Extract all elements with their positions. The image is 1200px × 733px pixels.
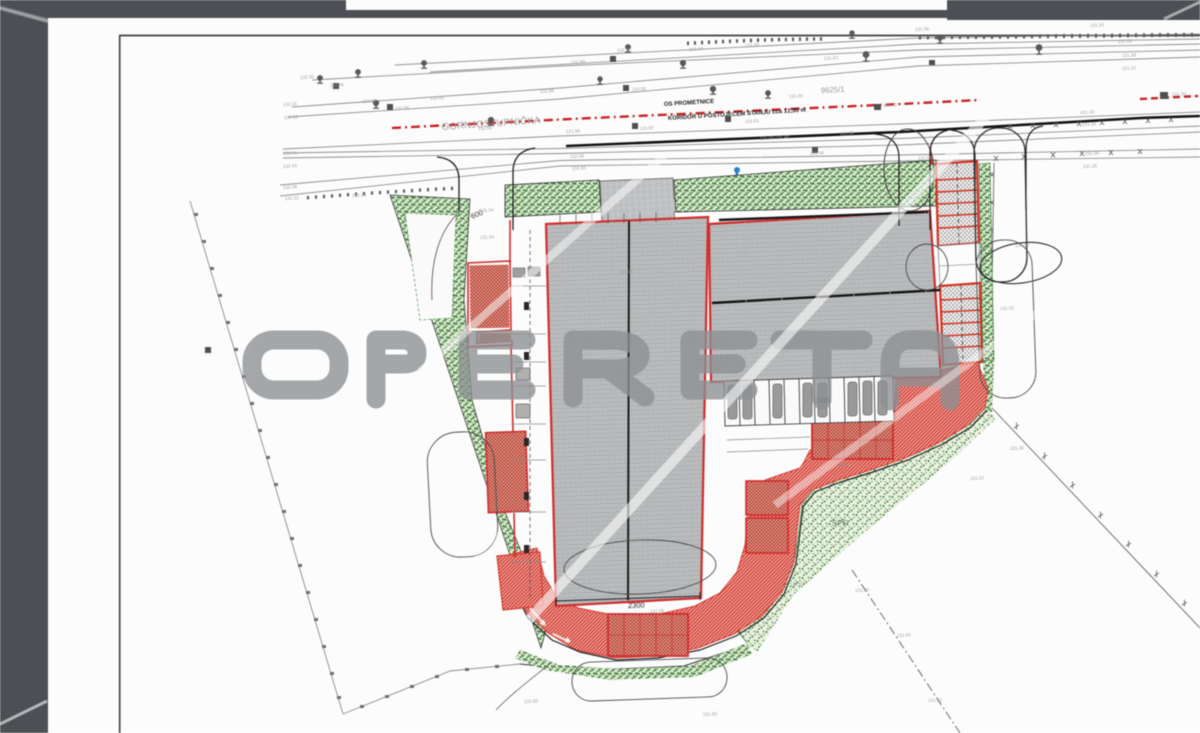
svg-text:131.83: 131.83 xyxy=(824,55,839,61)
svg-text:131.85: 131.85 xyxy=(703,711,718,717)
svg-text:131.82: 131.82 xyxy=(883,102,898,108)
svg-text:131.30: 131.30 xyxy=(1010,445,1025,451)
svg-text:132.08: 132.08 xyxy=(395,105,410,111)
svg-text:2300: 2300 xyxy=(628,600,645,610)
svg-text:131.32: 131.32 xyxy=(1000,305,1015,311)
svg-text:132.09: 132.09 xyxy=(632,86,647,92)
svg-text:131.62: 131.62 xyxy=(928,697,943,703)
svg-text:131.97: 131.97 xyxy=(640,125,655,131)
svg-text:131.99: 131.99 xyxy=(571,59,586,65)
svg-text:131.85: 131.85 xyxy=(789,93,804,99)
svg-text:132.43: 132.43 xyxy=(283,163,298,169)
svg-text:132.30: 132.30 xyxy=(300,74,315,80)
svg-text:131.38: 131.38 xyxy=(1122,52,1137,58)
svg-text:131.98: 131.98 xyxy=(540,88,555,94)
svg-text:131.84: 131.84 xyxy=(689,46,704,52)
svg-text:131.20: 131.20 xyxy=(1015,242,1030,248)
svg-text:131.80: 131.80 xyxy=(855,587,870,593)
svg-text:132.20: 132.20 xyxy=(617,47,632,53)
svg-text:131.38: 131.38 xyxy=(1085,150,1100,156)
svg-text:132.06: 132.06 xyxy=(478,125,493,131)
svg-text:132.36: 132.36 xyxy=(619,269,634,275)
svg-text:131.25: 131.25 xyxy=(1083,163,1098,169)
svg-text:132.02: 132.02 xyxy=(430,95,445,101)
svg-text:131.34: 131.34 xyxy=(480,234,495,240)
svg-text:132.23: 132.23 xyxy=(362,98,377,104)
svg-text:131.34: 131.34 xyxy=(480,207,494,213)
svg-text:101.22: 101.22 xyxy=(1122,65,1137,71)
svg-text:132.16: 132.16 xyxy=(352,192,367,198)
svg-text:132.39: 132.39 xyxy=(283,184,298,190)
svg-text:131.80: 131.80 xyxy=(745,42,760,48)
svg-text:131.44: 131.44 xyxy=(810,150,825,156)
svg-text:131.96: 131.96 xyxy=(566,128,581,134)
svg-text:132.08: 132.08 xyxy=(570,153,585,159)
svg-text:132.21: 132.21 xyxy=(283,101,298,107)
svg-text:132.36: 132.36 xyxy=(330,82,345,88)
svg-text:131.91: 131.91 xyxy=(572,165,587,171)
svg-text:131.58: 131.58 xyxy=(918,155,933,161)
svg-text:SPÐ: SPÐ xyxy=(832,518,849,528)
svg-text:132.51: 132.51 xyxy=(283,150,298,156)
svg-text:131.82: 131.82 xyxy=(524,698,539,704)
svg-text:131.81: 131.81 xyxy=(745,118,760,124)
svg-text:131.19: 131.19 xyxy=(1080,109,1095,115)
svg-text:132.32: 132.32 xyxy=(285,195,300,201)
svg-text:131.36: 131.36 xyxy=(915,26,930,32)
svg-text:131.62: 131.62 xyxy=(897,632,912,638)
svg-text:132.18: 132.18 xyxy=(284,114,299,120)
svg-text:131.36: 131.36 xyxy=(840,130,855,136)
svg-text:131.28: 131.28 xyxy=(1082,121,1097,127)
svg-text:131.02: 131.02 xyxy=(970,475,985,481)
svg-text:9625/1: 9625/1 xyxy=(821,85,845,95)
svg-text:131.08: 131.08 xyxy=(650,608,665,614)
svg-text:131.63: 131.63 xyxy=(790,581,805,587)
svg-text:131.28: 131.28 xyxy=(1118,38,1133,44)
svg-text:131.30: 131.30 xyxy=(1090,22,1105,28)
svg-text:131.20: 131.20 xyxy=(1172,91,1187,97)
